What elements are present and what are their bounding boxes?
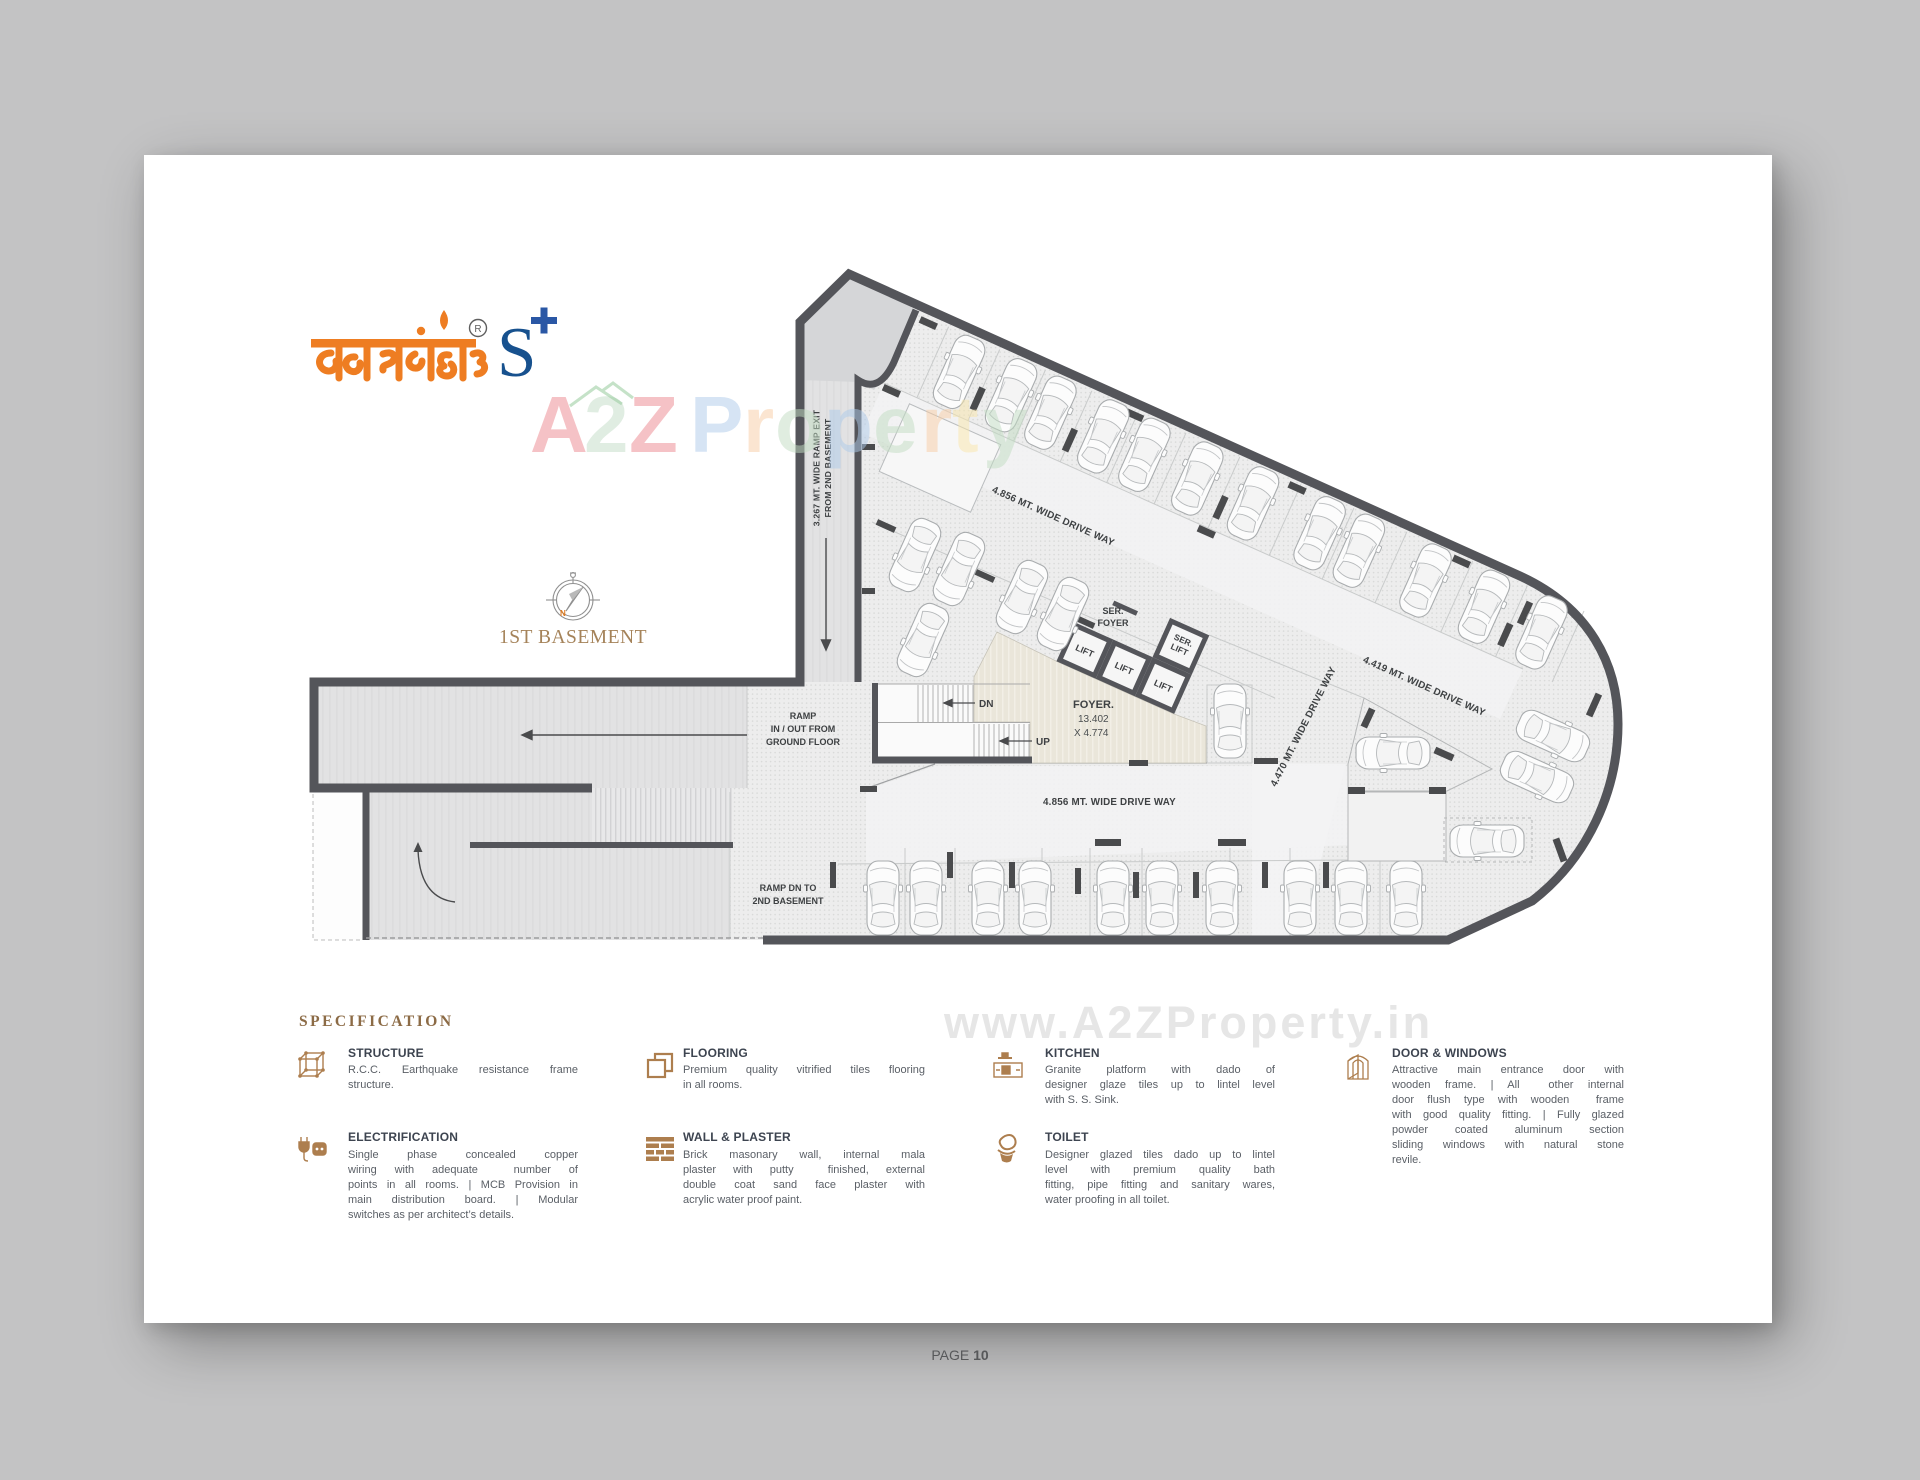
svg-text:RAMP: RAMP — [790, 711, 817, 721]
svg-text:P: P — [690, 380, 743, 469]
svg-text:o: o — [775, 380, 824, 469]
svg-text:Z: Z — [629, 380, 678, 469]
svg-text:X 4.774: X 4.774 — [1074, 728, 1109, 739]
svg-text:GROUND FLOOR: GROUND FLOOR — [766, 737, 840, 747]
svg-text:t: t — [952, 380, 979, 469]
svg-text:RAMP DN TO: RAMP DN TO — [760, 883, 817, 893]
svg-text:r: r — [921, 380, 952, 469]
svg-text:A: A — [530, 380, 588, 469]
svg-text:FOYER.: FOYER. — [1073, 699, 1114, 711]
svg-text:IN / OUT FROM: IN / OUT FROM — [771, 724, 836, 734]
svg-text:SPECIFICATION: SPECIFICATION — [299, 1013, 454, 1030]
svg-text:1ST BASEMENT: 1ST BASEMENT — [499, 627, 647, 648]
svg-text:r: r — [743, 380, 774, 469]
svg-text:DN: DN — [979, 699, 993, 710]
svg-text:e: e — [873, 380, 918, 469]
svg-text:p: p — [824, 380, 873, 469]
svg-text:13.402: 13.402 — [1078, 714, 1109, 725]
svg-text:FOYER: FOYER — [1097, 618, 1129, 628]
svg-text:N: N — [560, 609, 566, 618]
svg-text:2ND BASEMENT: 2ND BASEMENT — [752, 896, 824, 906]
svg-text:UP: UP — [1036, 737, 1050, 748]
svg-text:4.856 MT. WIDE DRIVE WAY: 4.856 MT. WIDE DRIVE WAY — [1043, 797, 1176, 808]
svg-text:SER.: SER. — [1102, 606, 1123, 616]
svg-text:y: y — [983, 380, 1028, 469]
svg-text:R: R — [474, 324, 481, 335]
